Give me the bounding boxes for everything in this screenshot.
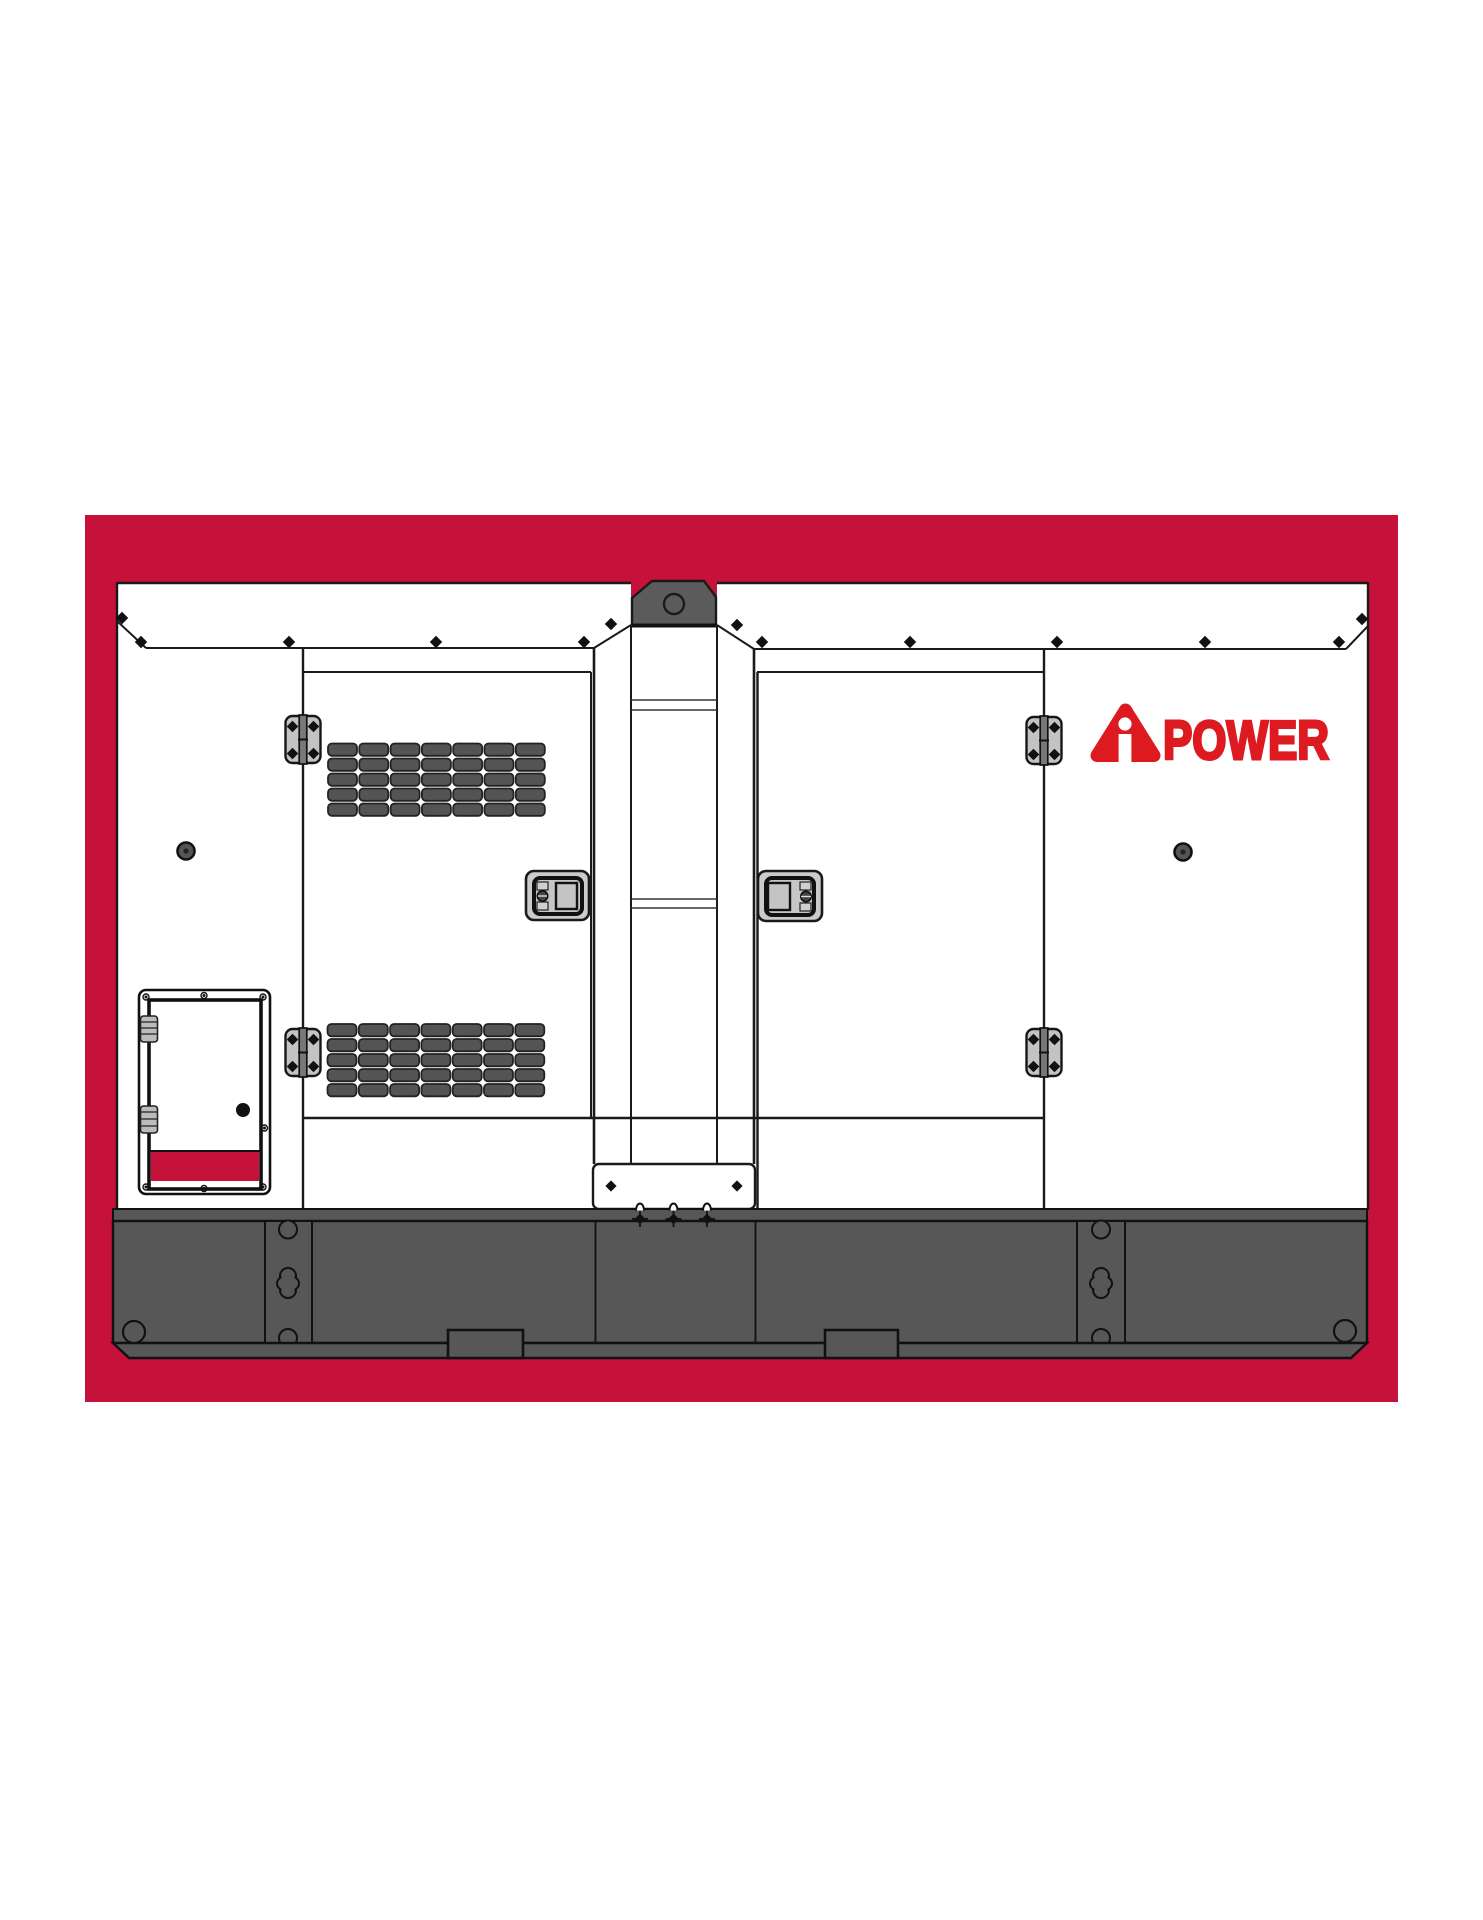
svg-text:POWER: POWER xyxy=(1163,709,1329,771)
